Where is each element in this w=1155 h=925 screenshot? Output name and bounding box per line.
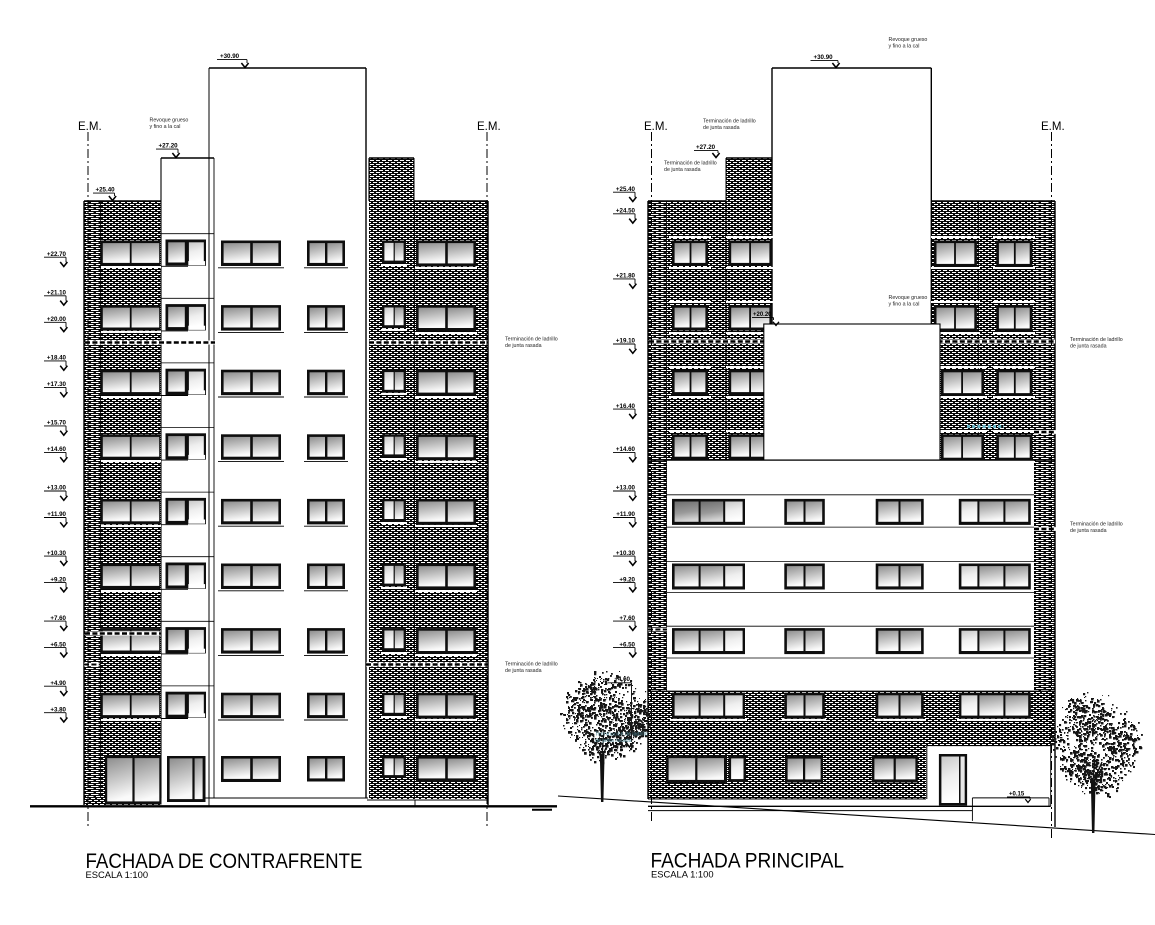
svg-text:Terminación de ladrillo: Terminación de ladrillo: [505, 662, 558, 668]
svg-text:de junta rasada: de junta rasada: [1070, 528, 1107, 534]
svg-text:E.M.: E.M.: [1041, 121, 1065, 133]
svg-text:de junta rasada: de junta rasada: [703, 125, 740, 131]
svg-text:de junta rasada: de junta rasada: [664, 167, 701, 173]
svg-text:+25.40: +25.40: [96, 187, 116, 194]
svg-text:Terminación de ladrillo: Terminación de ladrillo: [703, 119, 756, 125]
svg-text:de junta rasada: de junta rasada: [505, 668, 542, 674]
svg-text:Terminación de ladrillo: Terminación de ladrillo: [664, 161, 717, 167]
svg-text:ESCALA 1:100: ESCALA 1:100: [86, 869, 149, 880]
svg-text:+20.20: +20.20: [753, 312, 772, 318]
svg-text:+30.90: +30.90: [814, 54, 834, 61]
svg-text:y fino a la cal: y fino a la cal: [889, 301, 920, 307]
svg-text:Terminación de ladrillo: Terminación de ladrillo: [595, 732, 648, 738]
svg-text:y fino a la cal: y fino a la cal: [889, 43, 920, 49]
svg-text:y fino a la cal: y fino a la cal: [150, 124, 181, 130]
svg-text:Terminación de ladrillo: Terminación de ladrillo: [1070, 337, 1123, 343]
svg-text:Revoque grueso: Revoque grueso: [889, 37, 928, 43]
svg-text:+27.20: +27.20: [159, 143, 179, 150]
svg-text:ESCALA 1:100: ESCALA 1:100: [651, 868, 714, 879]
svg-text:de junta rasada: de junta rasada: [595, 738, 632, 744]
svg-text:Revoque grueso: Revoque grueso: [150, 118, 189, 124]
svg-text:Terminación de ladrillo: Terminación de ladrillo: [505, 337, 558, 343]
svg-text:+30.90: +30.90: [220, 53, 240, 60]
svg-text:+27.20: +27.20: [696, 144, 716, 151]
svg-text:E.M.: E.M.: [78, 121, 102, 133]
svg-text:de junta rasada: de junta rasada: [505, 343, 542, 349]
svg-text:Terminación de ladrillo: Terminación de ladrillo: [1070, 522, 1123, 528]
svg-text:de junta rasada: de junta rasada: [1070, 343, 1107, 349]
svg-text:E.M.: E.M.: [477, 121, 501, 133]
svg-text:Revoque grueso: Revoque grueso: [889, 295, 928, 301]
svg-text:E.M.: E.M.: [644, 121, 668, 133]
